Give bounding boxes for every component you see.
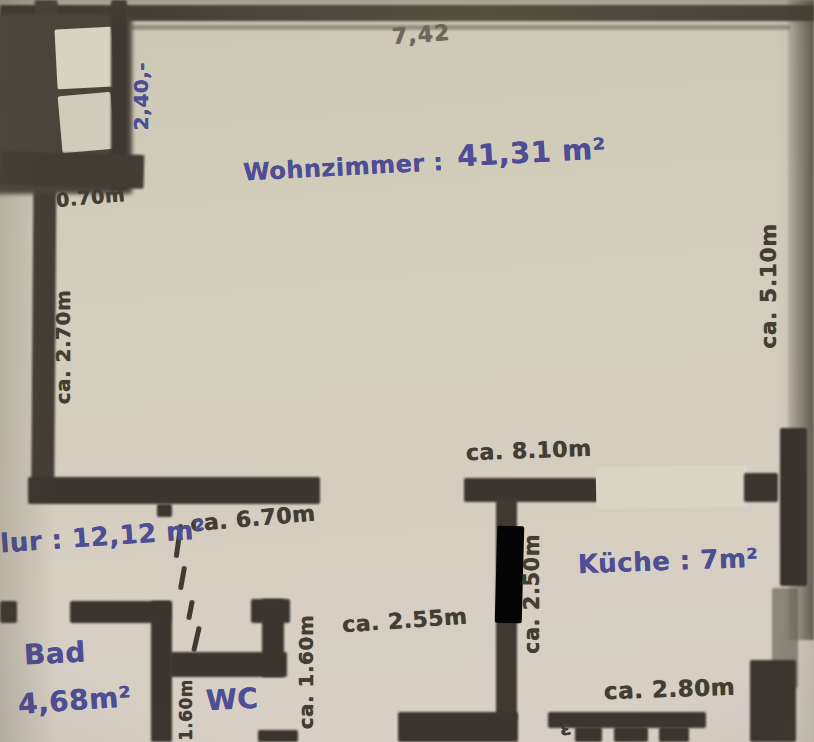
wall-flur-tick <box>157 504 172 517</box>
wall-top-second-line <box>130 25 790 30</box>
wall-wc-left <box>151 601 172 742</box>
measure-right-height: ca. 5.10m <box>755 213 781 359</box>
measure-kueche-width: ca. 2.80m <box>604 674 736 705</box>
wall-kueche-top <box>464 478 602 502</box>
door-dash-4 <box>191 626 202 652</box>
pencil-mark-epsilon: ε <box>559 715 573 740</box>
door-dash-2 <box>178 566 187 591</box>
room-label-bad: Bad <box>23 635 86 671</box>
wall-left-stub <box>0 77 37 111</box>
wall-kueche-top-right <box>744 473 778 502</box>
measure-top-width: 7,42 <box>391 20 451 49</box>
wall-flur-top <box>28 477 320 504</box>
measure-wc-depth: ca. 1.60m <box>293 609 319 735</box>
wohnzimmer-name: Wohnzimmer : <box>243 148 445 186</box>
wall-kueche-bottom-tick-2 <box>614 727 648 742</box>
wall-right-block <box>780 428 807 586</box>
room-label-wohnzimmer: Wohnzimmer : 41,31 m² <box>242 137 607 190</box>
wall-wc-right-cap <box>251 599 290 623</box>
wall-kueche-bottom-tick-3 <box>659 727 689 742</box>
room-label-kueche: Küche : 7m² <box>578 543 759 579</box>
wall-bad-top-left <box>0 601 17 623</box>
room-label-bad-area: 4,68m² <box>17 680 133 721</box>
measure-entry-width: 0.70m <box>55 183 126 211</box>
balcony-opening-upper <box>54 27 114 90</box>
whiteout-patch <box>596 465 749 510</box>
balcony-opening-lower <box>58 92 116 153</box>
wall-bottom-corridor <box>398 712 518 742</box>
wohnzimmer-area: 41,31 m² <box>456 132 606 174</box>
room-label-wc: WC <box>205 682 259 718</box>
wall-kueche-bottom-tick-1 <box>575 727 602 742</box>
door-dash-3 <box>186 600 195 621</box>
measure-corridor-width: ca. 2.55m <box>341 604 468 638</box>
measure-balcony-height: 2,40,- <box>128 46 154 146</box>
floor-plan-scan: 7,42 2,40,- 0.70m ca. 2.70m Wohnzimmer :… <box>0 0 814 742</box>
measure-left-height: ca. 2.70m <box>50 285 76 409</box>
wall-right-bottom-block <box>750 660 796 742</box>
measure-middle-width: ca. 8.10m <box>466 436 592 465</box>
measure-kueche-depth: ca. 2.50m <box>519 524 545 664</box>
measure-wc-width: 1.60m <box>175 677 197 742</box>
measure-flur-width: ca. 6.70m <box>189 501 316 537</box>
wall-bottom-stub-wc <box>258 730 298 742</box>
